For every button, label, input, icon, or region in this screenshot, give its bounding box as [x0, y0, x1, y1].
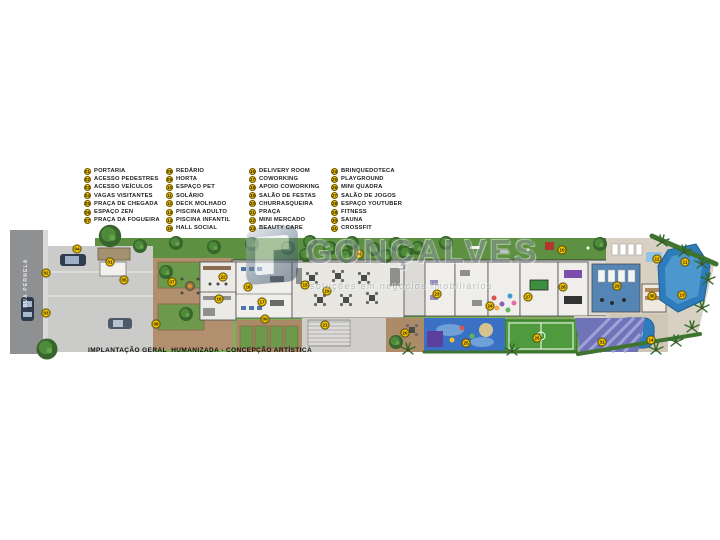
legend-label-04: VAGAS VISITANTES	[94, 193, 153, 199]
legend-item-11: 11SOLÁRIO	[166, 192, 230, 200]
legend-number-badge-25: 25	[331, 176, 338, 183]
legend-item-18: 18APOIO COWORKING	[249, 183, 320, 191]
legend-label-11: SOLÁRIO	[176, 193, 204, 199]
legend-label-08: REDÁRIO	[176, 168, 204, 174]
legend-label-24: BRINQUEDOTECA	[341, 168, 395, 174]
legend-label-02: ACESSO PEDESTRES	[94, 176, 158, 182]
legend-item-30: 30SAUNA	[331, 216, 402, 224]
legend-label-19: SALÃO DE FESTAS	[259, 193, 316, 199]
legend-column-2: 08REDÁRIO09HORTA10ESPAÇO PET11SOLÁRIO12D…	[166, 167, 230, 233]
legend-item-16: 16DELIVERY ROOM	[249, 167, 320, 175]
legend-number-badge-23: 23	[249, 225, 256, 232]
legend-label-27: SALÃO DE JOGOS	[341, 193, 396, 199]
legend-number-badge-02: 02	[84, 176, 91, 183]
legend-number-badge-07: 07	[84, 217, 91, 224]
legend-item-06: 06ESPAÇO ZEN	[84, 208, 160, 216]
coworking-rooms	[236, 262, 292, 318]
amenity-rooms	[425, 262, 588, 316]
gatehouse	[98, 248, 130, 276]
legend-item-08: 08REDÁRIO	[166, 167, 230, 175]
legend-item-02: 02ACESSO PEDESTRES	[84, 175, 160, 183]
street-name-label: RUA PERNELA	[23, 258, 29, 307]
fitness-room	[592, 264, 640, 312]
legend-number-badge-04: 04	[84, 192, 91, 199]
legend-number-badge-01: 01	[84, 168, 91, 175]
legend-number-badge-27: 27	[331, 192, 338, 199]
legend-number-badge-21: 21	[249, 209, 256, 216]
legend-number-badge-08: 08	[166, 168, 173, 175]
legend-number-badge-22: 22	[249, 217, 256, 224]
legend-number-badge-10: 10	[166, 184, 173, 191]
legend-number-badge-29: 29	[331, 209, 338, 216]
legend-number-badge-28: 28	[331, 200, 338, 207]
legend-item-14: 14PISCINA INFANTIL	[166, 216, 230, 224]
legend-label-20: CHURRASQUEIRA	[259, 201, 313, 207]
legend-label-16: DELIVERY ROOM	[259, 168, 310, 174]
legend-label-23: BEAUTY CARE	[259, 225, 303, 231]
legend-label-09: HORTA	[176, 176, 197, 182]
legend-number-badge-30: 30	[331, 217, 338, 224]
legend-item-19: 19SALÃO DE FESTAS	[249, 192, 320, 200]
legend-item-15: 15HALL SOCIAL	[166, 224, 230, 232]
legend-number-badge-26: 26	[331, 184, 338, 191]
legend-label-13: PISCINA ADULTO	[176, 209, 227, 215]
legend-label-26: MINI QUADRA	[341, 184, 383, 190]
legend-item-25: 25PLAYGROUND	[331, 175, 402, 183]
legend-number-badge-16: 16	[249, 168, 256, 175]
legend-label-14: PISCINA INFANTIL	[176, 217, 230, 223]
legend-item-12: 12DECK MOLHADO	[166, 200, 230, 208]
legend-item-26: 26MINI QUADRA	[331, 183, 402, 191]
legend-number-badge-06: 06	[84, 209, 91, 216]
legend-column-1: 01PORTARIA02ACESSO PEDESTRES03ACESSO VEÍ…	[84, 167, 160, 224]
visitor-parked-car	[60, 254, 86, 266]
market-delivery-rooms	[200, 262, 236, 320]
legend-item-24: 24BRINQUEDOTECA	[331, 167, 402, 175]
entry-plaza	[48, 246, 153, 352]
legend-number-badge-17: 17	[249, 176, 256, 183]
bbq-deck	[386, 318, 424, 352]
legend-number-badge-13: 13	[166, 209, 173, 216]
legend-label-12: DECK MOLHADO	[176, 201, 226, 207]
legend-label-10: ESPAÇO PET	[176, 184, 215, 190]
legend-number-badge-09: 09	[166, 176, 173, 183]
mini-court	[505, 320, 577, 352]
legend-label-15: HALL SOCIAL	[176, 225, 217, 231]
legend-item-20: 20CHURRASQUEIRA	[249, 200, 320, 208]
legend-number-badge-14: 14	[166, 217, 173, 224]
legend-label-17: COWORKING	[259, 176, 298, 182]
legend-item-28: 28ESPAÇO YOUTUBER	[331, 200, 402, 208]
legend-item-22: 22MINI MERCADO	[249, 216, 320, 224]
legend-item-07: 07PRAÇA DA FOGUEIRA	[84, 216, 160, 224]
playground-area	[424, 318, 505, 352]
legend-number-badge-31: 31	[331, 225, 338, 232]
amenities-legend: 01PORTARIA02ACESSO PEDESTRES03ACESSO VEÍ…	[0, 0, 720, 240]
legend-label-03: ACESSO VEÍCULOS	[94, 184, 153, 190]
legend-item-01: 01PORTARIA	[84, 167, 160, 175]
party-hall	[292, 262, 404, 318]
legend-number-badge-19: 19	[249, 192, 256, 199]
site-plan-page: 01PORTARIA02ACESSO PEDESTRES03ACESSO VEÍ…	[0, 0, 720, 540]
legend-item-31: 31CROSSFIT	[331, 224, 402, 232]
legend-label-06: ESPAÇO ZEN	[94, 209, 133, 215]
legend-label-31: CROSSFIT	[341, 225, 372, 231]
legend-label-29: FITNESS	[341, 209, 367, 215]
legend-number-badge-20: 20	[249, 200, 256, 207]
legend-label-18: APOIO COWORKING	[259, 184, 320, 190]
exiting-car	[108, 318, 132, 329]
legend-label-30: SAUNA	[341, 217, 363, 223]
legend-item-03: 03ACESSO VEÍCULOS	[84, 183, 160, 191]
legend-label-01: PORTARIA	[94, 168, 125, 174]
legend-label-25: PLAYGROUND	[341, 176, 384, 182]
legend-item-21: 21PRAÇA	[249, 208, 320, 216]
legend-label-21: PRAÇA	[259, 209, 281, 215]
plan-caption: IMPLANTAÇÃO GERAL HUMANIZADA - CONCEPÇÃO…	[88, 347, 312, 354]
legend-item-29: 29FITNESS	[331, 208, 402, 216]
legend-item-13: 13PISCINA ADULTO	[166, 208, 230, 216]
legend-number-badge-03: 03	[84, 184, 91, 191]
street	[10, 230, 48, 354]
legend-number-badge-11: 11	[166, 192, 173, 199]
walkway	[302, 318, 386, 352]
legend-number-badge-15: 15	[166, 225, 173, 232]
legend-item-10: 10ESPAÇO PET	[166, 183, 230, 191]
legend-item-23: 23BEAUTY CARE	[249, 224, 320, 232]
legend-item-27: 27SALÃO DE JOGOS	[331, 192, 402, 200]
legend-number-badge-05: 05	[84, 200, 91, 207]
legend-label-22: MINI MERCADO	[259, 217, 305, 223]
legend-column-3: 16DELIVERY ROOM17COWORKING18APOIO COWORK…	[249, 167, 320, 233]
legend-label-07: PRAÇA DA FOGUEIRA	[94, 217, 160, 223]
legend-item-17: 17COWORKING	[249, 175, 320, 183]
legend-column-4: 24BRINQUEDOTECA25PLAYGROUND26MINI QUADRA…	[331, 167, 402, 233]
legend-item-04: 04VAGAS VISITANTES	[84, 192, 160, 200]
legend-label-05: PRAÇA DE CHEGADA	[94, 201, 158, 207]
legend-number-badge-24: 24	[331, 168, 338, 175]
legend-number-badge-18: 18	[249, 184, 256, 191]
legend-label-28: ESPAÇO YOUTUBER	[341, 201, 402, 207]
legend-item-05: 05PRAÇA DE CHEGADA	[84, 200, 160, 208]
legend-item-09: 09HORTA	[166, 175, 230, 183]
legend-number-badge-12: 12	[166, 200, 173, 207]
